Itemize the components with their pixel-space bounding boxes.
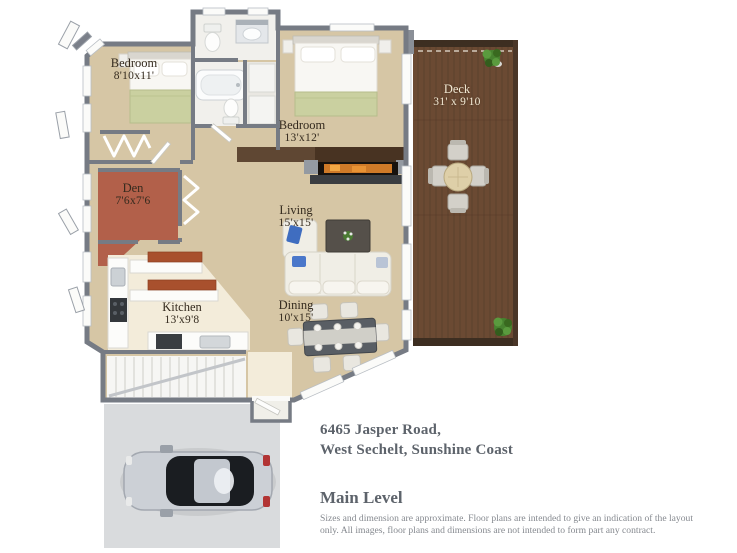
room-name: Den [116,181,151,195]
room-label-dining: Dining 10'x15' [279,298,314,325]
sink-icon [236,20,268,43]
room-dims: 10'x15' [279,312,314,325]
room-name: Living [279,203,314,217]
room-label-den: Den 7'6x7'6 [116,181,151,208]
plant-icon [494,318,513,337]
room-label-deck: Deck 31' x 9'10 [433,82,480,109]
room-dims: 31' x 9'10 [433,96,480,109]
room-dims: 8'10x11' [111,70,158,83]
address-line-1: 6465 Jasper Road, [320,420,513,440]
room-name: Bedroom [279,118,326,132]
toilet-icon [204,24,221,52]
toilet-icon [223,99,239,124]
room-label-kitchen: Kitchen 13'x9'8 [162,300,202,327]
car-icon [120,445,276,517]
address-line-2: West Sechelt, Sunshine Coast [320,440,513,460]
room-dims: 7'6x7'6 [116,195,151,208]
property-address: 6465 Jasper Road, West Sechelt, Sunshine… [320,420,513,460]
bathtub-icon [196,70,246,100]
bed-icon [283,36,391,116]
room-label-bedroom-2: Bedroom 13'x12' [279,118,326,145]
stairs-icon [107,356,246,398]
room-dims: 15'x15' [279,217,314,230]
room-name: Deck [433,82,480,96]
room-label-living: Living 15'x15' [279,203,314,230]
room-name: Dining [279,298,314,312]
level-title: Main Level [320,488,403,508]
room-label-bedroom-1: Bedroom 8'10x11' [111,56,158,83]
entry-door-icon [252,396,290,421]
room-dims: 13'x12' [279,132,326,145]
plant-icon [483,49,503,67]
room-dims: 13'x9'8 [162,314,202,327]
coffee-table-icon [326,220,370,252]
floor-plan-page: Bedroom 8'10x11' Bedroom 13'x12' Den 7'6… [0,0,737,553]
room-name: Bedroom [111,56,158,70]
disclaimer-text: Sizes and dimension are approximate. Flo… [320,513,712,537]
room-name: Kitchen [162,300,202,314]
